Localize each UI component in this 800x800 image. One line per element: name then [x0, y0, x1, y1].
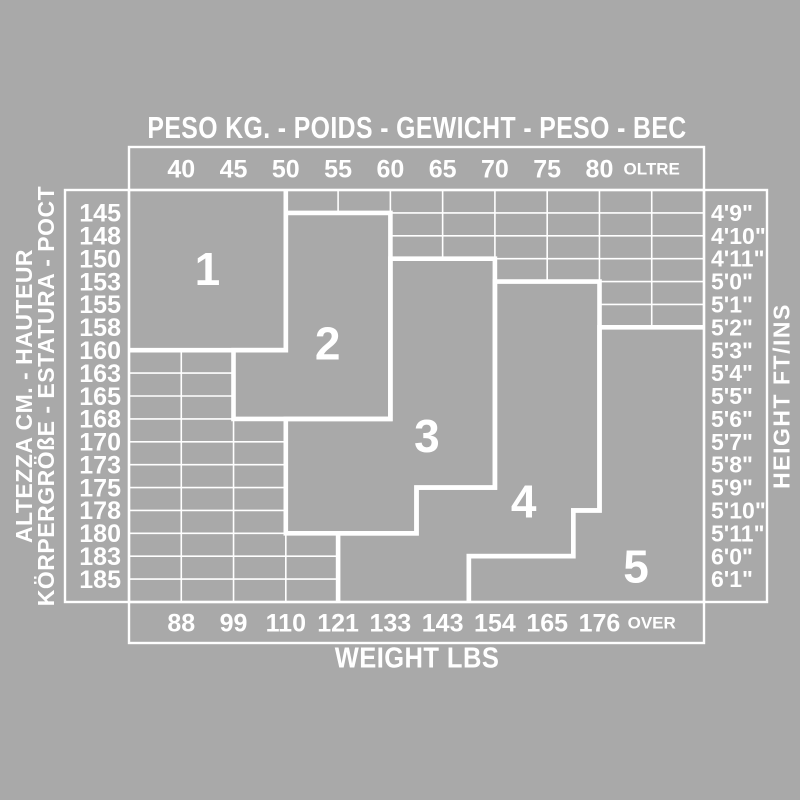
bottom-tick: 88: [167, 609, 195, 637]
top-tick: 70: [481, 155, 509, 183]
left-tick: 185: [79, 566, 121, 594]
size-chart: PESO KG. - POIDS - GEWICHT - PESO - BEC …: [0, 0, 800, 800]
zone-1-label: 1: [195, 243, 221, 295]
right-tick: 6'1": [711, 566, 753, 592]
bottom-tick: 121: [317, 609, 359, 637]
bottom-tick: 154: [474, 609, 516, 637]
bottom-tick: 176: [579, 609, 621, 637]
top-tick: OLTRE: [624, 159, 680, 178]
top-tick: 45: [220, 155, 248, 183]
top-tick: 55: [324, 155, 352, 183]
bottom-tick: OVER: [628, 613, 676, 632]
top-tick: 80: [586, 155, 614, 183]
zone-2-label: 2: [315, 317, 341, 369]
bottom-tick: 133: [370, 609, 412, 637]
size-chart-grid: 404550556065707580OLTRE88991101211331431…: [0, 0, 800, 800]
top-tick: 60: [376, 155, 404, 183]
top-tick: 75: [533, 155, 561, 183]
bottom-axis-title: WEIGHT LBS: [335, 643, 500, 676]
zone-3-label: 3: [414, 410, 440, 462]
zone-5-label: 5: [623, 541, 649, 593]
bottom-tick: 99: [220, 609, 248, 637]
top-tick: 40: [167, 155, 195, 183]
bottom-tick: 143: [422, 609, 464, 637]
bottom-tick: 110: [266, 609, 306, 637]
zone-4-label: 4: [511, 475, 537, 527]
top-axis-box: [129, 147, 704, 190]
top-tick: 65: [429, 155, 457, 183]
top-tick: 50: [272, 155, 300, 183]
bottom-tick: 165: [526, 609, 568, 637]
